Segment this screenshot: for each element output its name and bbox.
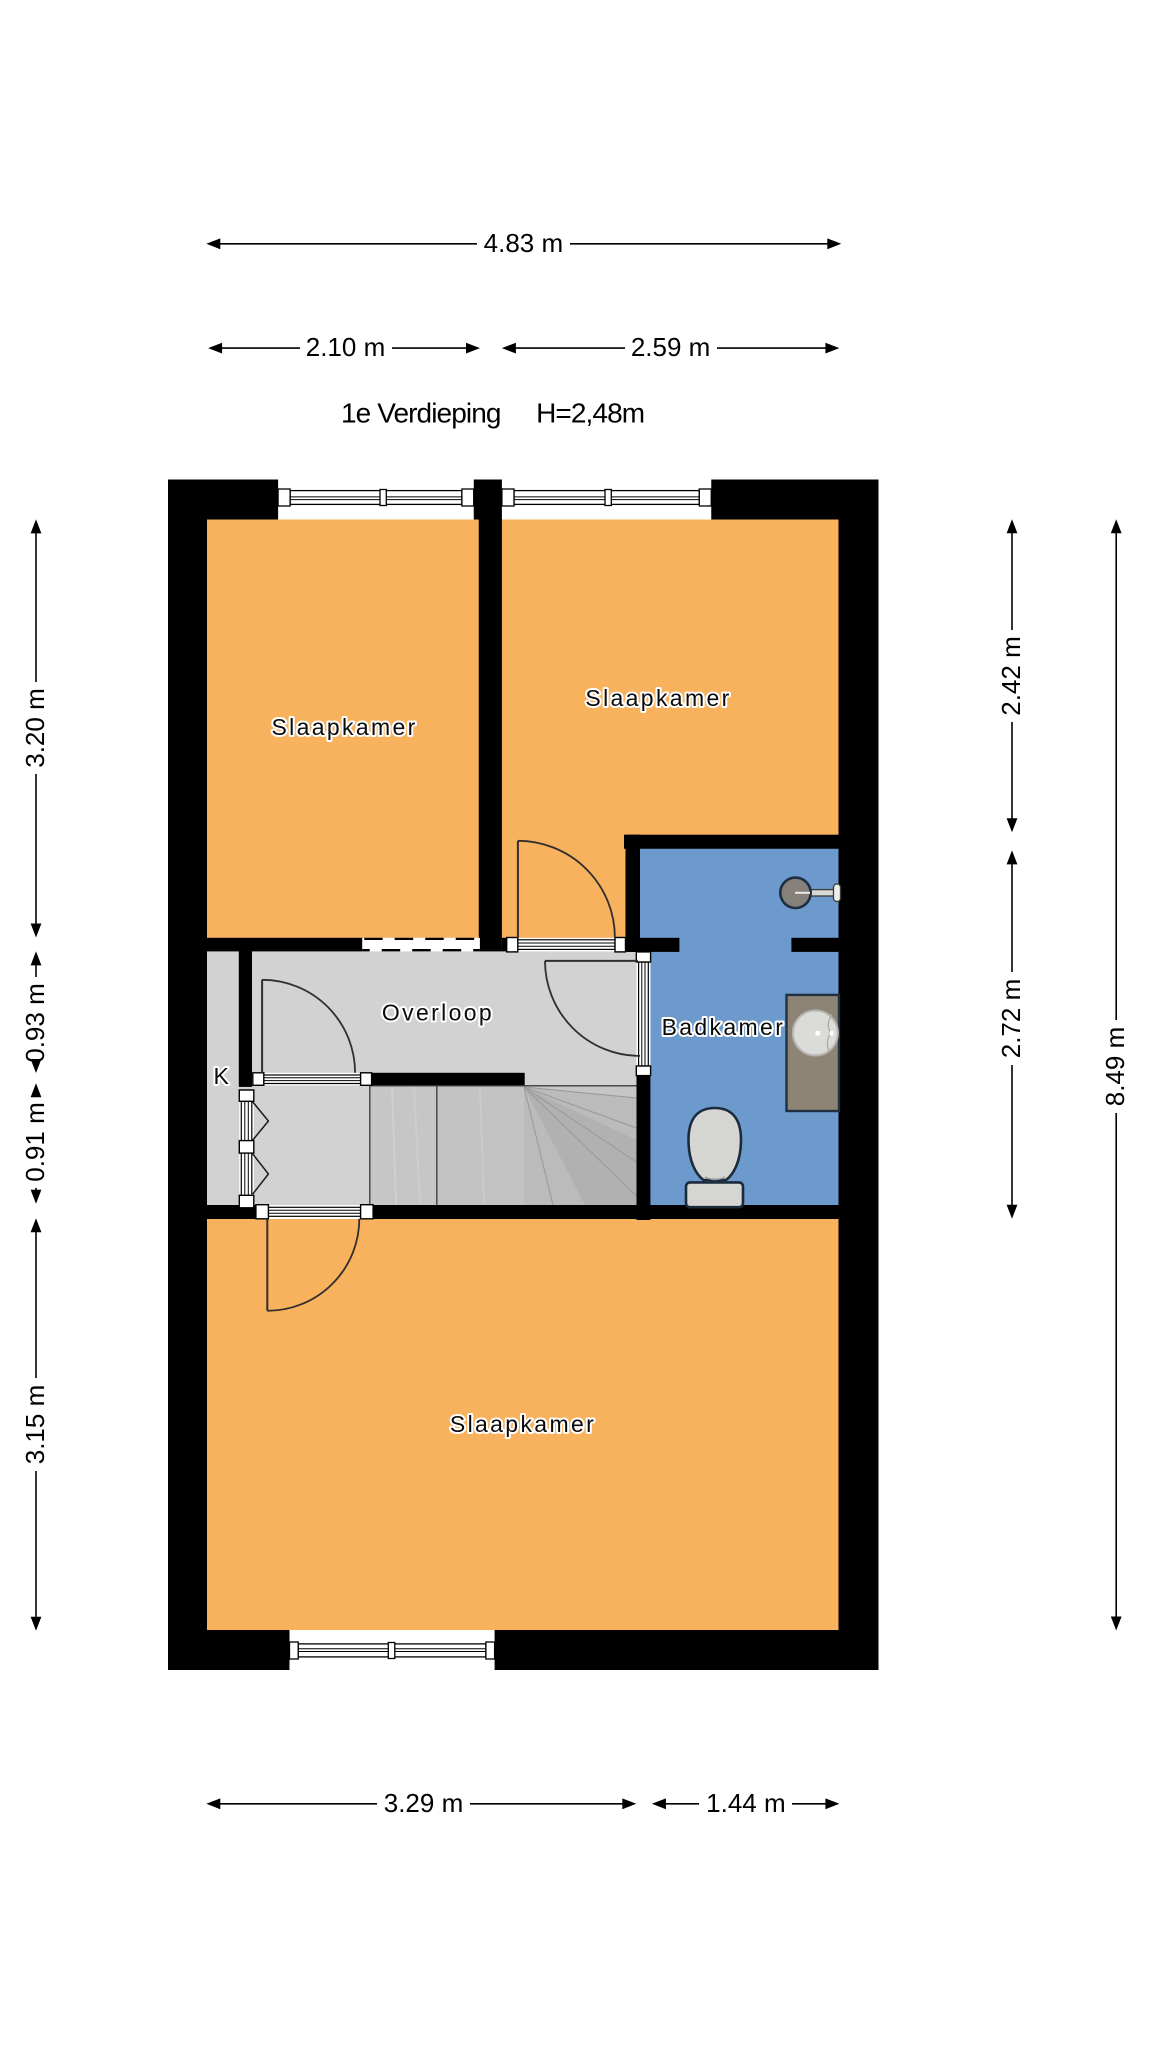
svg-text:3.29 m: 3.29 m bbox=[384, 1788, 464, 1818]
svg-text:0.93 m: 0.93 m bbox=[20, 983, 50, 1063]
svg-text:3.15 m: 3.15 m bbox=[20, 1385, 50, 1465]
svg-text:8.49 m: 8.49 m bbox=[1100, 1027, 1130, 1107]
svg-text:Slaapkamer: Slaapkamer bbox=[450, 1411, 596, 1437]
svg-text:3.20 m: 3.20 m bbox=[20, 688, 50, 768]
svg-text:Badkamer: Badkamer bbox=[662, 1014, 786, 1040]
svg-text:1e Verdieping: 1e Verdieping bbox=[341, 397, 501, 428]
svg-text:2.72 m: 2.72 m bbox=[996, 979, 1026, 1059]
svg-text:H=2,48m: H=2,48m bbox=[536, 397, 644, 428]
svg-text:K: K bbox=[214, 1063, 232, 1089]
svg-text:Overloop: Overloop bbox=[382, 1000, 494, 1026]
svg-text:2.59 m: 2.59 m bbox=[631, 332, 711, 362]
svg-text:2.10 m: 2.10 m bbox=[306, 332, 386, 362]
svg-text:Slaapkamer: Slaapkamer bbox=[585, 685, 731, 711]
svg-text:4.83 m: 4.83 m bbox=[484, 228, 564, 258]
svg-text:0.91 m: 0.91 m bbox=[20, 1102, 50, 1182]
svg-text:2.42 m: 2.42 m bbox=[996, 636, 1026, 716]
svg-text:Slaapkamer: Slaapkamer bbox=[271, 714, 417, 740]
svg-text:1.44 m: 1.44 m bbox=[706, 1788, 786, 1818]
